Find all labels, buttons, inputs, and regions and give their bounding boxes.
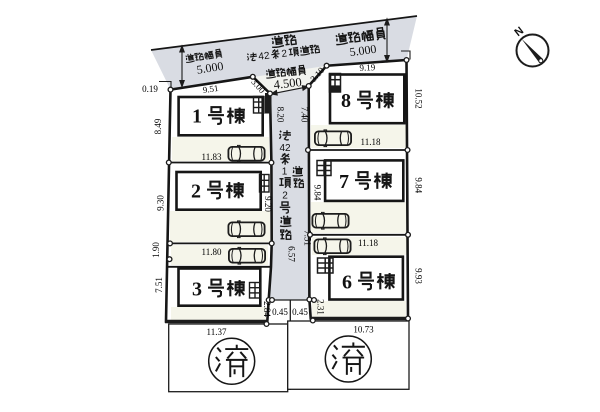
svg-text:2.84: 2.84: [262, 301, 272, 317]
svg-text:9.84: 9.84: [313, 185, 323, 201]
svg-text:11.18: 11.18: [361, 137, 381, 147]
svg-text:9.30: 9.30: [156, 195, 166, 211]
svg-text:7.51: 7.51: [154, 277, 164, 293]
svg-text:1.90: 1.90: [151, 242, 161, 258]
svg-text:9.20: 9.20: [263, 196, 273, 212]
svg-text:2: 2: [282, 191, 288, 202]
svg-text:1: 1: [282, 167, 288, 178]
svg-text:11.83: 11.83: [202, 152, 222, 162]
svg-text:2.31: 2.31: [316, 299, 326, 315]
svg-text:0.45: 0.45: [292, 307, 308, 317]
svg-text:4.500: 4.500: [273, 75, 302, 92]
svg-text:42: 42: [258, 50, 271, 62]
svg-text:11.18: 11.18: [358, 238, 378, 248]
svg-text:6: 6: [342, 272, 352, 294]
svg-text:10.52: 10.52: [414, 88, 424, 108]
svg-text:11.80: 11.80: [202, 247, 222, 257]
svg-text:9.93: 9.93: [414, 268, 424, 284]
svg-text:7: 7: [339, 171, 349, 193]
svg-text:11.37: 11.37: [207, 327, 227, 337]
svg-text:9.19: 9.19: [359, 62, 376, 73]
svg-text:0.45: 0.45: [272, 307, 288, 317]
svg-text:8: 8: [341, 90, 351, 112]
svg-text:8.49: 8.49: [153, 118, 163, 134]
svg-text:7.40: 7.40: [300, 107, 310, 123]
svg-text:8.20: 8.20: [276, 107, 286, 123]
svg-text:1: 1: [192, 106, 202, 128]
svg-text:2: 2: [191, 181, 201, 203]
svg-text:42: 42: [279, 143, 291, 154]
svg-text:0.19: 0.19: [142, 84, 158, 94]
svg-text:3: 3: [192, 279, 202, 301]
svg-text:10.73: 10.73: [353, 325, 374, 335]
svg-text:9.84: 9.84: [414, 177, 424, 193]
svg-text:6.57: 6.57: [286, 246, 296, 262]
